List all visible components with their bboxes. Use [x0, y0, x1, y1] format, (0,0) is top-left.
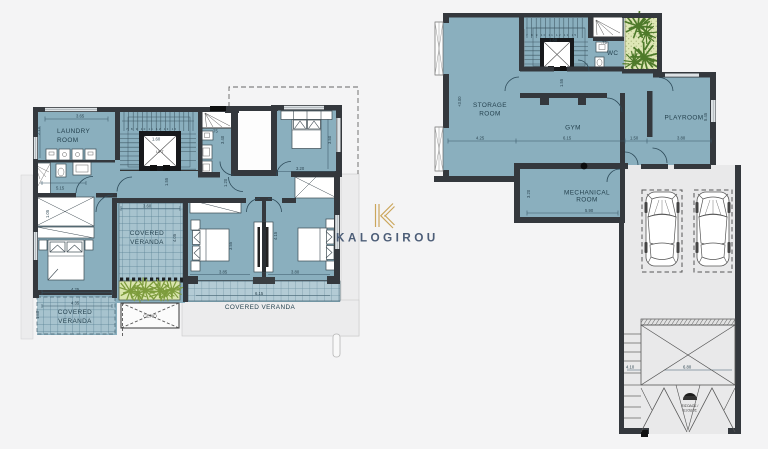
svg-text:4.25: 4.25	[71, 287, 80, 292]
svg-text:KALOGIROU: KALOGIROU	[336, 231, 439, 245]
svg-text:1.60: 1.60	[152, 137, 161, 142]
svg-text:PLAYROOM: PLAYROOM	[665, 115, 704, 122]
svg-text:3.85: 3.85	[219, 270, 228, 275]
svg-text:3.80: 3.80	[677, 136, 686, 141]
svg-text:ROOM: ROOM	[57, 137, 78, 144]
svg-text:1.55: 1.55	[164, 177, 169, 186]
svg-text:3.20: 3.20	[296, 166, 305, 171]
svg-text:COVERED: COVERED	[58, 309, 92, 316]
svg-text:WC: WC	[607, 50, 618, 57]
svg-text:7 8 9 10 11 12 13 15: 7 8 9 10 11 12 13 15	[126, 127, 177, 131]
svg-text:5.15: 5.15	[56, 186, 65, 191]
svg-text:3.40: 3.40	[220, 135, 225, 144]
svg-text:5.90: 5.90	[585, 208, 594, 213]
svg-text:4.05: 4.05	[172, 233, 177, 242]
svg-text:VERANDA: VERANDA	[58, 318, 92, 325]
svg-text:.75: .75	[601, 40, 607, 45]
svg-text:4.15: 4.15	[273, 231, 278, 240]
svg-text:1.80: 1.80	[35, 310, 40, 319]
svg-text:MECHANICAL: MECHANICAL	[564, 190, 610, 197]
svg-text:4.35: 4.35	[71, 301, 80, 306]
svg-text:ΕΙΣΟΔΟΣ /: ΕΙΣΟΔΟΣ /	[682, 404, 699, 408]
svg-text:1.05: 1.05	[45, 209, 50, 218]
svg-text:3.65: 3.65	[76, 113, 85, 118]
svg-text:4.25: 4.25	[476, 136, 485, 141]
svg-text:ROOM: ROOM	[576, 197, 597, 204]
svg-text:ROOM: ROOM	[479, 111, 500, 118]
svg-text:3.55: 3.55	[228, 241, 233, 250]
svg-text:5.45: 5.45	[703, 112, 708, 121]
svg-text:3.20: 3.20	[526, 189, 531, 198]
svg-text:6.15: 6.15	[563, 136, 572, 141]
svg-text:1.60: 1.60	[549, 38, 558, 43]
svg-text:2.10: 2.10	[36, 126, 41, 135]
svg-text:STORAGE: STORAGE	[473, 102, 507, 109]
svg-text:1.20: 1.20	[223, 178, 228, 187]
svg-text:VERANDA: VERANDA	[130, 239, 164, 246]
svg-text:LAUNDRY: LAUNDRY	[57, 128, 91, 135]
svg-text:GYM: GYM	[565, 125, 581, 132]
svg-text:ΕΞΟΔΟΣ: ΕΞΟΔΟΣ	[683, 409, 697, 413]
svg-text:LIFT: LIFT	[156, 150, 164, 154]
svg-text:7 8 9 10 11 12 13 15: 7 8 9 10 11 12 13 15	[526, 33, 577, 37]
svg-text:.75: .75	[212, 129, 218, 134]
svg-text:3.80: 3.80	[291, 270, 300, 275]
svg-text:3.60: 3.60	[143, 204, 152, 209]
svg-text:+3.00: +3.00	[457, 96, 462, 107]
svg-text:6.80: 6.80	[683, 365, 692, 370]
svg-text:COVERED: COVERED	[130, 230, 164, 237]
svg-text:6.15: 6.15	[255, 291, 264, 296]
svg-text:1.50: 1.50	[630, 136, 639, 141]
svg-text:CENO: CENO	[143, 314, 157, 320]
svg-text:COVERED VERANDA: COVERED VERANDA	[225, 304, 296, 311]
svg-text:1.55: 1.55	[559, 78, 564, 87]
svg-text:4.10: 4.10	[626, 365, 635, 370]
svg-text:3.50: 3.50	[327, 135, 332, 144]
